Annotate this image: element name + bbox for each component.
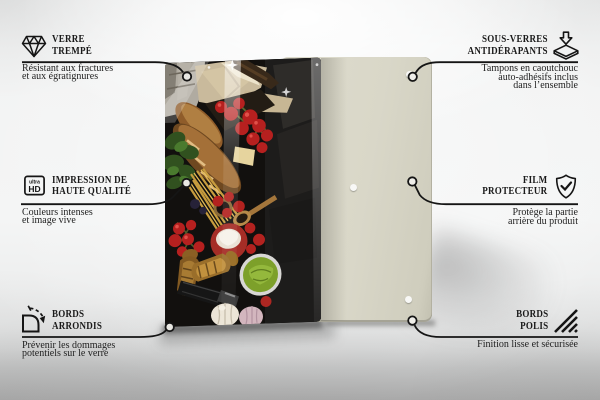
svg-text:HD: HD [28, 184, 40, 194]
